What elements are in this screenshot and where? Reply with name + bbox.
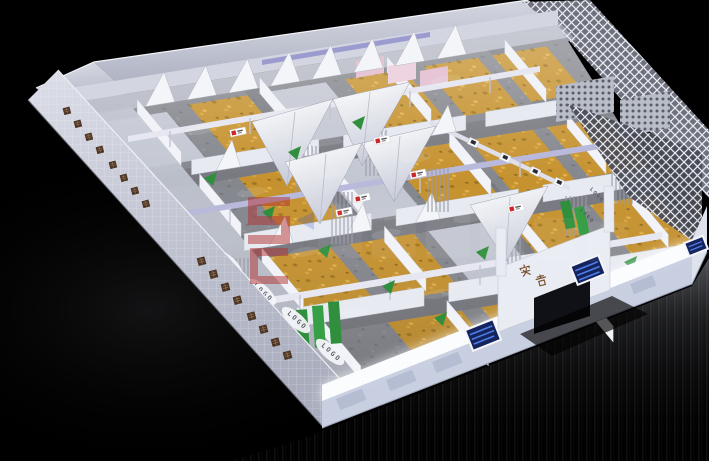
exhibition-hall-screenshot: LOGO LOGO LOGO LOGO LOGO LOGO LOGO LOGO … [0, 0, 709, 461]
hall-render-canvas: LOGO LOGO LOGO LOGO LOGO LOGO LOGO LOGO … [0, 0, 709, 461]
